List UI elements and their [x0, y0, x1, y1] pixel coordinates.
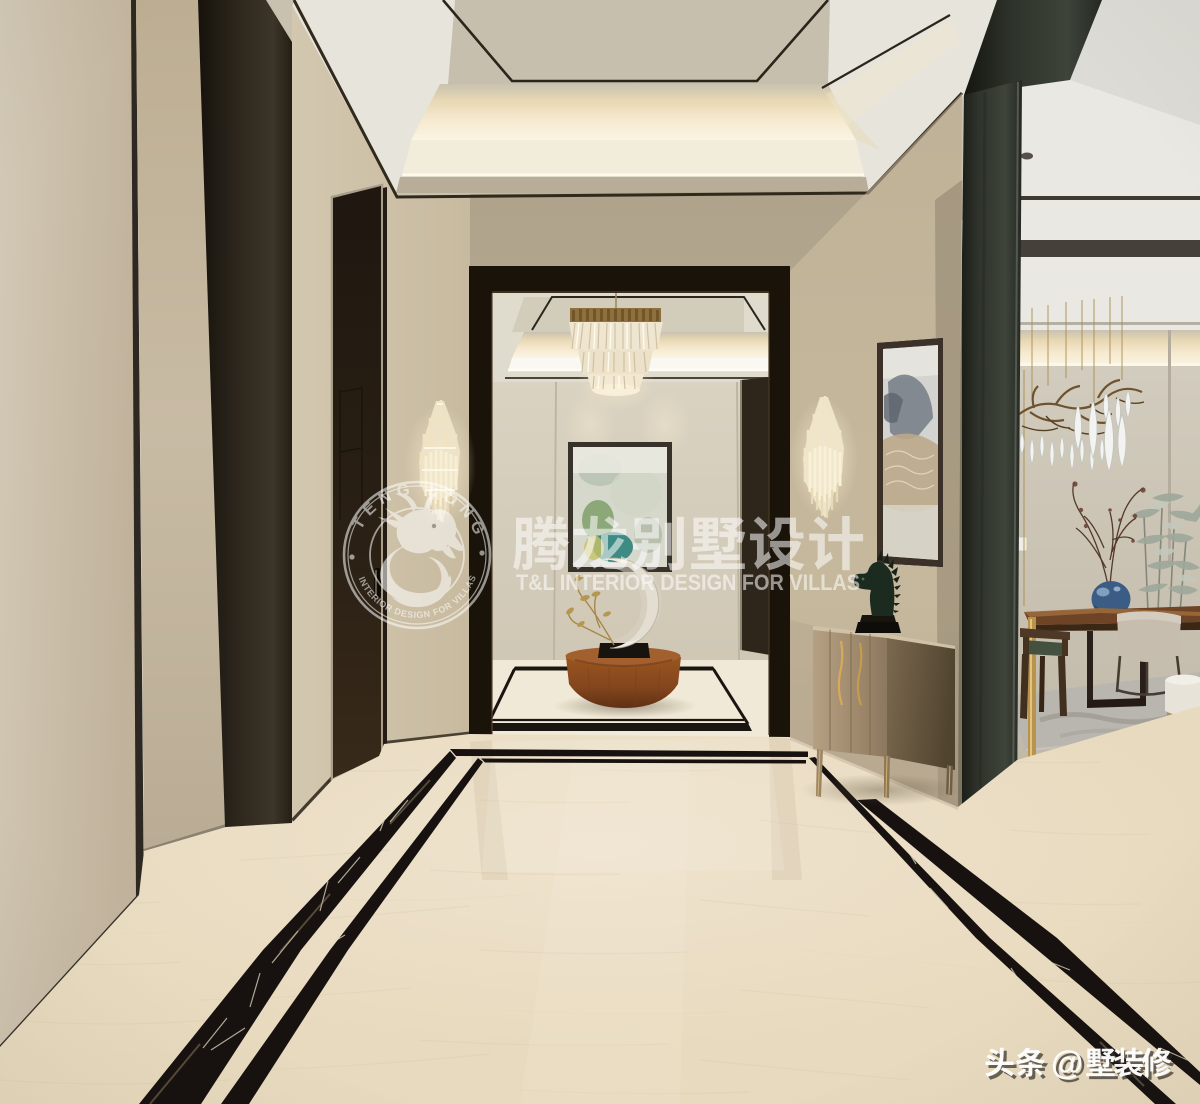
svg-text:@: @ [1051, 1044, 1083, 1081]
svg-text:T&L INTERIOR DESIGN FOR VI: T&L INTERIOR DESIGN FOR VILLAS [516, 570, 860, 595]
